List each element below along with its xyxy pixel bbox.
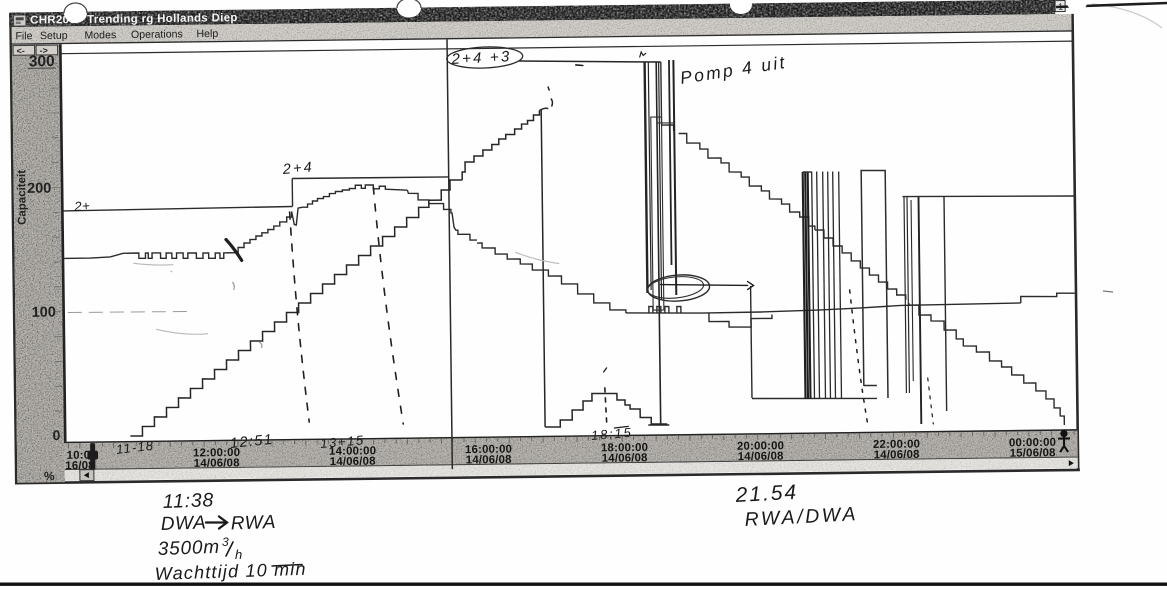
svg-text:2+4: 2+4 — [281, 159, 314, 178]
svg-text:200: 200 — [27, 181, 51, 197]
svg-text:File: File — [15, 30, 32, 42]
svg-text:3500m: 3500m — [157, 537, 220, 560]
svg-text:0: 0 — [52, 427, 60, 443]
svg-text:100: 100 — [32, 305, 56, 321]
svg-text:2+: 2+ — [73, 198, 91, 214]
svg-text:14/06/08: 14/06/08 — [330, 456, 376, 469]
svg-text:Help: Help — [196, 28, 218, 40]
svg-text:21.54: 21.54 — [734, 481, 799, 507]
svg-text:14/06/08: 14/06/08 — [874, 449, 920, 462]
svg-text:Setup: Setup — [40, 30, 68, 42]
svg-text:Operations: Operations — [131, 28, 183, 41]
svg-text:DWA: DWA — [160, 512, 206, 535]
svg-text:14/06/08: 14/06/08 — [466, 454, 512, 467]
svg-text:15/06/08: 15/06/08 — [1010, 447, 1056, 460]
svg-text:Modes: Modes — [84, 29, 116, 41]
svg-text:11:38: 11:38 — [162, 489, 214, 513]
svg-text:14/06/08: 14/06/08 — [194, 457, 240, 470]
svg-text:h: h — [235, 547, 242, 562]
svg-text:3: 3 — [222, 535, 229, 549]
svg-text:%: % — [44, 469, 55, 483]
svg-text:<-: <- — [17, 46, 25, 56]
svg-text:14/06/08: 14/06/08 — [602, 452, 648, 465]
svg-text:CHR200 - Trending rg Hollands: CHR200 - Trending rg Hollands Diep — [30, 12, 238, 27]
svg-text:14/06/08: 14/06/08 — [738, 451, 784, 464]
svg-text:RWA: RWA — [230, 512, 276, 535]
svg-text:Capaciteit: Capaciteit — [16, 170, 29, 225]
